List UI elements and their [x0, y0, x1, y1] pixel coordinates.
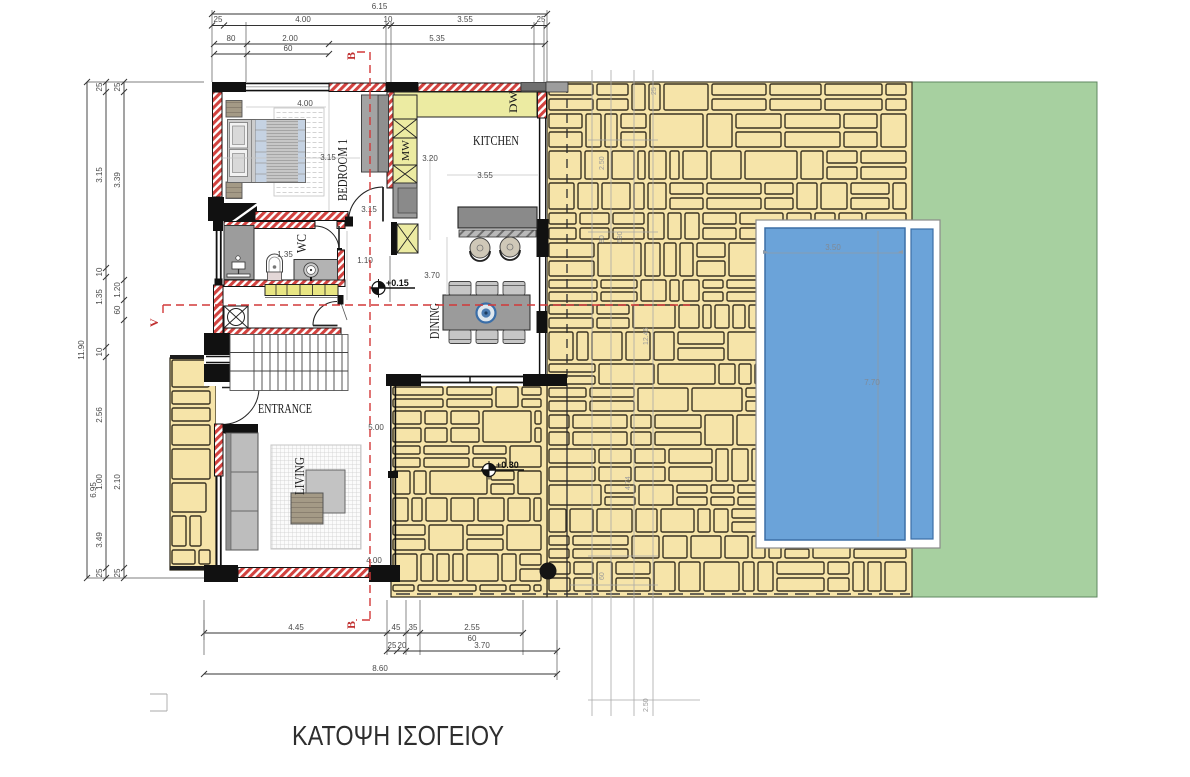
svg-text:+0.30: +0.30	[496, 460, 519, 470]
svg-text:20: 20	[398, 641, 407, 650]
svg-text:25: 25	[113, 568, 122, 577]
svg-text:60: 60	[284, 44, 293, 53]
svg-text:2.50: 2.50	[643, 698, 650, 712]
svg-text:B: B	[344, 52, 358, 60]
svg-text:690: 690	[617, 231, 624, 243]
svg-text:7.70: 7.70	[864, 378, 880, 387]
svg-text:10: 10	[95, 267, 104, 276]
svg-text:3.49: 3.49	[95, 532, 104, 548]
svg-text:25: 25	[113, 82, 122, 91]
svg-text:25: 25	[95, 82, 104, 91]
svg-text:4.00: 4.00	[297, 99, 313, 108]
svg-text:DINING: DINING	[428, 303, 443, 339]
svg-text:8.60: 8.60	[372, 664, 388, 673]
svg-text:10: 10	[384, 15, 393, 24]
svg-text:25: 25	[95, 568, 104, 577]
svg-text:2.50: 2.50	[599, 156, 606, 170]
svg-text:80: 80	[599, 235, 606, 243]
svg-text:B: B	[344, 621, 358, 629]
svg-text:25: 25	[651, 87, 658, 95]
svg-text:6.15: 6.15	[372, 2, 388, 11]
svg-text:3.20: 3.20	[422, 154, 438, 163]
svg-text:3.39: 3.39	[113, 172, 122, 188]
svg-text:3.15: 3.15	[361, 205, 377, 214]
svg-text:ENTRANCE: ENTRANCE	[258, 402, 312, 417]
svg-text:DW: DW	[506, 90, 520, 113]
svg-text:4.00: 4.00	[366, 556, 382, 565]
svg-text:25: 25	[388, 641, 397, 650]
svg-text:60: 60	[599, 572, 606, 580]
svg-text:60: 60	[113, 305, 122, 314]
svg-text:25: 25	[214, 15, 223, 24]
svg-text:10: 10	[95, 347, 104, 356]
svg-text:2.56: 2.56	[95, 407, 104, 423]
svg-text:2.00: 2.00	[282, 34, 298, 43]
svg-text:3.50: 3.50	[825, 243, 841, 252]
svg-text:6.95: 6.95	[89, 482, 98, 498]
svg-text:3.70: 3.70	[424, 271, 440, 280]
svg-text:KITCHEN: KITCHEN	[473, 134, 519, 149]
svg-text:35: 35	[409, 623, 418, 632]
svg-text:+0.15: +0.15	[386, 278, 409, 288]
svg-text:5.35: 5.35	[429, 34, 445, 43]
svg-text:25: 25	[537, 15, 546, 24]
svg-text:3.15: 3.15	[320, 153, 336, 162]
svg-text:LIVING: LIVING	[293, 457, 308, 495]
svg-text:WC: WC	[295, 234, 310, 253]
svg-text:3.70: 3.70	[474, 641, 490, 650]
svg-text:4.45: 4.45	[288, 623, 304, 632]
svg-text:2.10: 2.10	[113, 474, 122, 490]
svg-text:ΚΑΤΟΨΗ ΙΣΟΓΕΙΟΥ: ΚΑΤΟΨΗ ΙΣΟΓΕΙΟΥ	[292, 720, 504, 751]
svg-text:4.74: 4.74	[625, 476, 632, 490]
svg-text:1.35: 1.35	[95, 289, 104, 305]
svg-text:4.00: 4.00	[295, 15, 311, 24]
svg-text:MW: MW	[400, 139, 412, 161]
svg-text:45: 45	[392, 623, 401, 632]
svg-text:V: V	[147, 318, 161, 327]
svg-text:11.90: 11.90	[77, 340, 86, 360]
svg-text:3.55: 3.55	[477, 171, 493, 180]
svg-text:3.15: 3.15	[95, 167, 104, 183]
svg-text:BEDROOM 1: BEDROOM 1	[336, 139, 351, 201]
svg-text:1.10: 1.10	[357, 256, 373, 265]
svg-text:1.35: 1.35	[277, 250, 293, 259]
svg-text:2.55: 2.55	[464, 623, 480, 632]
svg-text:1.20: 1.20	[113, 282, 122, 298]
svg-text:12.45: 12.45	[643, 327, 650, 345]
svg-text:3.55: 3.55	[457, 15, 473, 24]
svg-text:80: 80	[227, 34, 236, 43]
